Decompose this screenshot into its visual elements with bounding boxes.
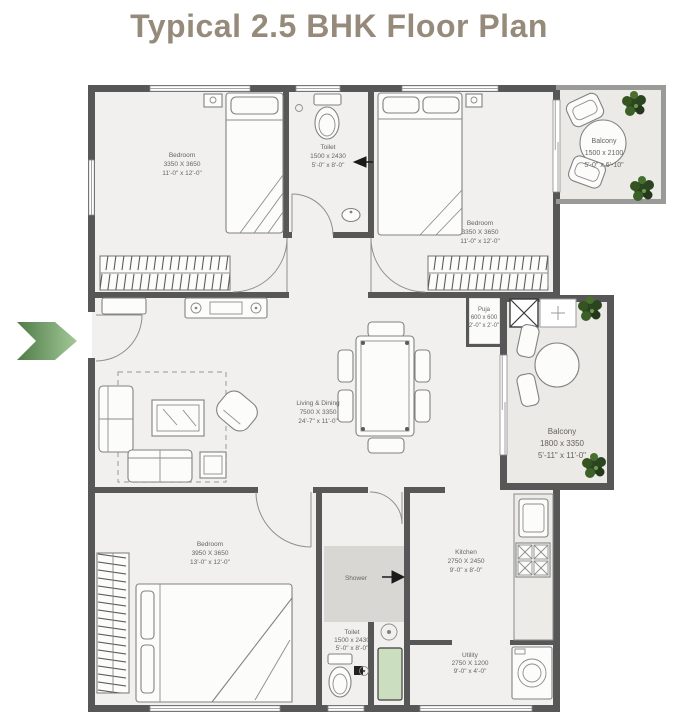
entry-arrow-icon [17, 322, 77, 360]
floor-shower [324, 546, 404, 622]
room-size-ft: 9'-0" x 4'-0" [454, 668, 487, 675]
room-size-mm: 1500 x 2100 [585, 150, 624, 157]
duct-box-icon [510, 299, 538, 327]
washing-machine-icon [512, 647, 552, 699]
room-name: Shower [345, 575, 368, 582]
side-table-icon [204, 94, 222, 107]
room-size-mm: 3350 X 3650 [164, 161, 201, 168]
cabinet-icon [102, 298, 146, 314]
room-name: Puja [478, 307, 491, 313]
tv-console-icon [185, 298, 267, 318]
floor-puja [469, 298, 500, 344]
side-table-icon [466, 94, 482, 107]
room-size-mm: 3350 X 3650 [462, 229, 499, 236]
room-size-mm: 7500 X 3350 [300, 409, 337, 416]
room-name: Bedroom [197, 541, 223, 548]
sliding-door-icon [500, 355, 507, 455]
room-size-ft: 5'-0" x 8'-0" [336, 645, 369, 652]
room-size-mm: 1500 x 2430 [334, 637, 370, 644]
shaft-boxes [510, 299, 576, 327]
utility-mat [378, 648, 402, 700]
room-size-mm: 600 x 600 [471, 315, 498, 321]
room-size-ft: 11'-0" x 12'-0" [460, 238, 500, 245]
room-size-ft: 24'-7" x 11'-0" [298, 418, 338, 425]
room-size-mm: 2750 X 2450 [448, 558, 485, 565]
room-name: Balcony [592, 138, 617, 145]
room-size-ft: 5'-0" x 8'-0" [312, 162, 345, 169]
wardrobe-icon [97, 553, 129, 693]
room-size-ft: 5'-0" x 6'-10" [584, 162, 624, 169]
room-name: Bedroom [467, 220, 493, 227]
dining-table-icon [356, 336, 414, 436]
bed-icon [226, 93, 283, 233]
plus-box-icon [540, 299, 576, 327]
dining-chair-icon [338, 350, 353, 382]
wardrobe-icon [100, 256, 230, 290]
round-table-icon [535, 343, 579, 387]
room-size-mm: 1500 x 2430 [310, 153, 346, 160]
room-size-mm: 1800 x 3350 [540, 439, 585, 448]
coffee-table-icon [152, 400, 204, 436]
room-name: Toilet [320, 144, 335, 151]
dining-chair-icon [368, 322, 404, 337]
room-name: Utility [462, 652, 479, 659]
dining-chair-icon [368, 438, 404, 453]
room-name: Bedroom [169, 152, 195, 159]
room-size-mm: 2750 X 1200 [452, 660, 489, 667]
room-name: Balcony [548, 427, 576, 436]
page-title: Typical 2.5 BHK Floor Plan [0, 8, 678, 45]
dining-chair-icon [415, 390, 430, 422]
bed-icon [378, 93, 462, 235]
room-label-shower: Shower [345, 575, 368, 582]
sofa-icon [128, 450, 192, 482]
room-name: Kitchen [455, 549, 477, 556]
furniture-utility [512, 647, 552, 699]
stove-icon [516, 543, 550, 577]
room-name: Toilet [344, 629, 359, 636]
room-size-ft: 11'-0" x 12'-0" [162, 170, 202, 177]
room-size-mm: 3950 X 3650 [192, 550, 229, 557]
room-label-living-dining: Living & Dining 7500 X 3350 24'-7" x 11'… [296, 400, 340, 425]
room-size-ft: 5'-11" x 11'-0" [538, 451, 586, 460]
room-size-ft: 2'-0" x 2'-0" [469, 323, 499, 329]
floor-plan: Bedroom 3350 X 3650 11'-0" x 12'-0" Toil… [0, 0, 678, 718]
sofa-icon [99, 386, 133, 452]
wc-icon [328, 654, 352, 697]
bed-icon [136, 584, 292, 702]
dining-chair-icon [338, 390, 353, 422]
wardrobe-icon [428, 256, 548, 290]
room-size-ft: 13'-0" x 12'-0" [190, 559, 231, 566]
furniture-kitchen [514, 494, 553, 640]
room-size-ft: 9'-0" x 8'-0" [450, 567, 483, 574]
sliding-door-icon [553, 100, 560, 192]
washbasin-icon [342, 209, 360, 222]
wc-icon [314, 94, 341, 139]
room-name: Living & Dining [296, 400, 340, 407]
dining-chair-icon [415, 350, 430, 382]
kitchen-sink-icon [519, 499, 548, 537]
side-table-icon [200, 452, 226, 478]
